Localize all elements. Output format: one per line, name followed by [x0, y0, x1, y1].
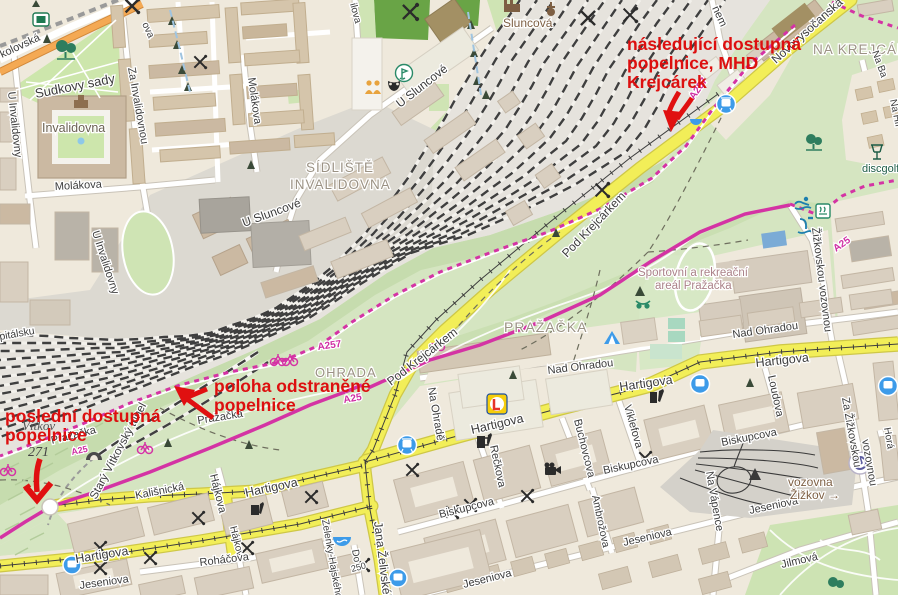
svg-text:areál Pražačka: areál Pražačka [655, 280, 732, 292]
svg-text:popelnice: popelnice [5, 425, 87, 445]
svg-text:Molákova: Molákova [55, 179, 104, 193]
svg-text:vozovna: vozovna [788, 475, 833, 489]
svg-text:discgolf: discgolf [862, 163, 898, 175]
svg-text:poloha odstraněné: poloha odstraněné [214, 376, 371, 396]
svg-text:PRAŽAČKA: PRAŽAČKA [504, 319, 587, 335]
svg-text:popelnice, MHD: popelnice, MHD [627, 53, 758, 73]
svg-text:Sportovní a rekreační: Sportovní a rekreační [638, 267, 749, 279]
svg-text:INVALIDOVNA: INVALIDOVNA [290, 177, 391, 192]
svg-text:NA KREJCÁRK: NA KREJCÁRK [813, 42, 898, 57]
svg-text:271: 271 [28, 445, 49, 460]
svg-text:popelnice: popelnice [214, 395, 296, 415]
svg-text:následující dostupná: následující dostupná [627, 34, 801, 54]
svg-text:Krejcárek: Krejcárek [627, 72, 707, 92]
svg-text:poslední dostupná: poslední dostupná [5, 406, 161, 426]
svg-text:Sluncová: Sluncová [503, 16, 553, 30]
svg-text:Invalidovna: Invalidovna [42, 121, 105, 135]
svg-text:SÍDLIŠTĚ: SÍDLIŠTĚ [306, 160, 374, 175]
svg-text:Žižkov →: Žižkov → [790, 487, 840, 502]
